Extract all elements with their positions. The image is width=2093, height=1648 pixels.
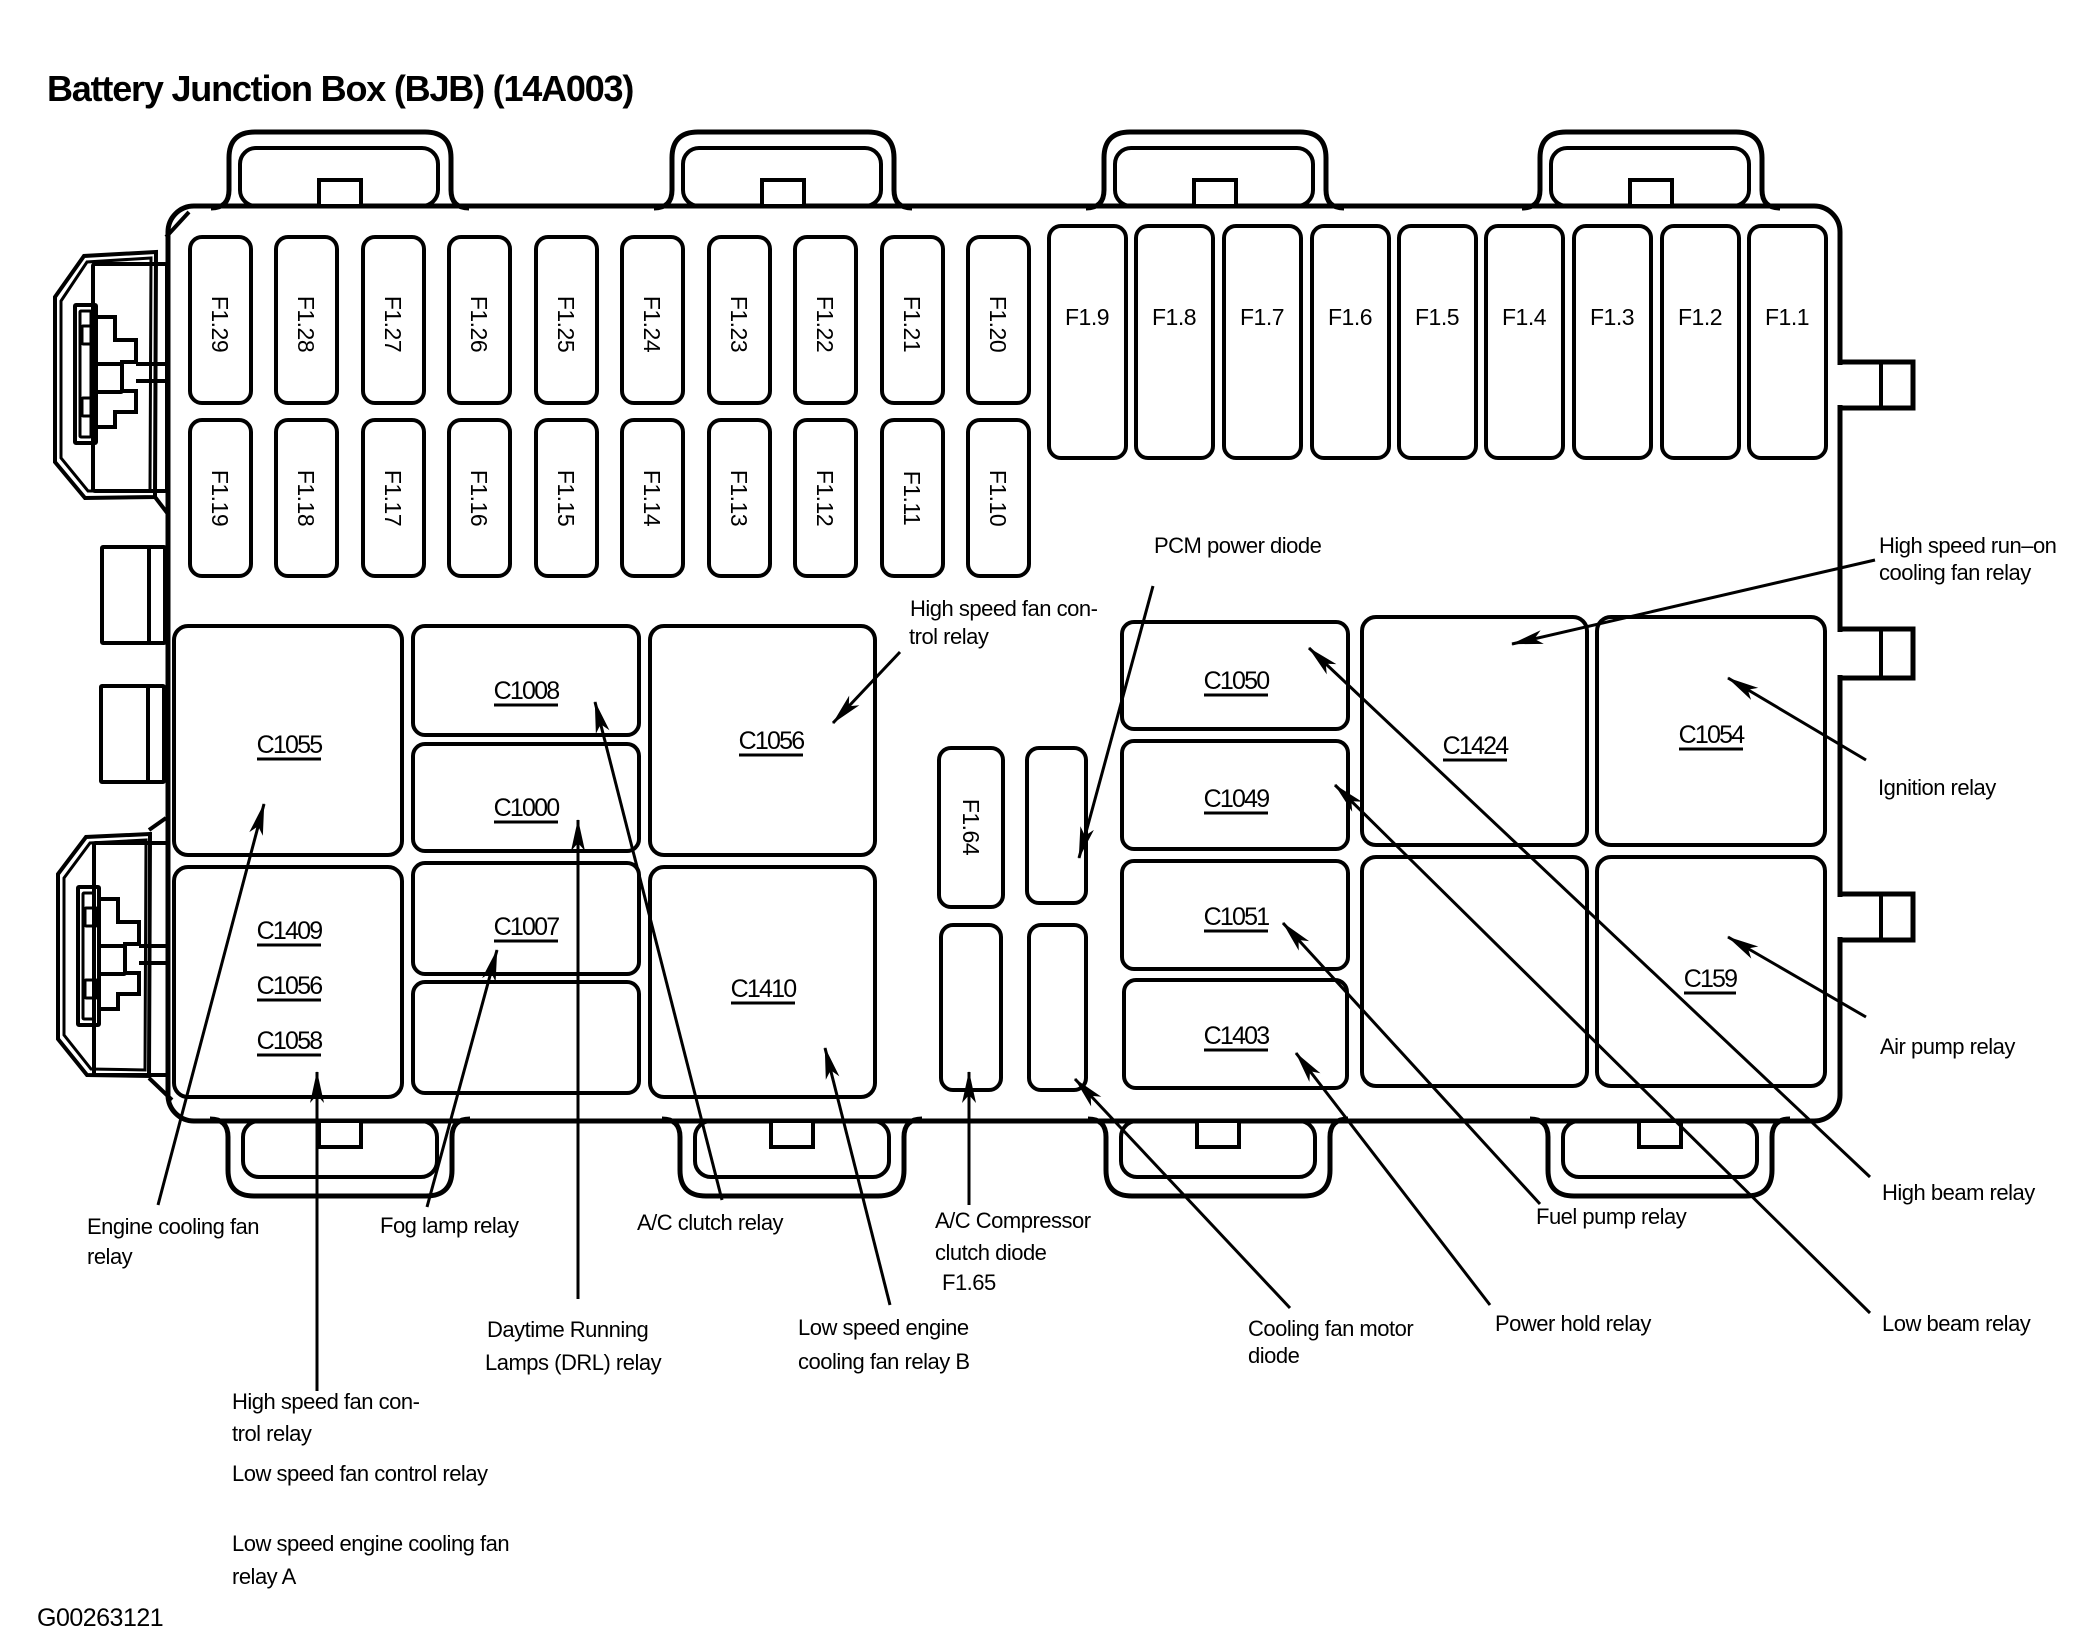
- svg-text:Fuel pump relay: Fuel pump relay: [1536, 1204, 1687, 1229]
- svg-text:F1.8: F1.8: [1152, 304, 1196, 330]
- svg-text:trol relay: trol relay: [909, 624, 989, 649]
- svg-text:F1.28: F1.28: [293, 296, 319, 352]
- svg-text:Fog lamp relay: Fog lamp relay: [380, 1213, 519, 1238]
- svg-text:C1007: C1007: [494, 913, 560, 941]
- svg-text:Air pump relay: Air pump relay: [1880, 1034, 2015, 1059]
- svg-text:F1.22: F1.22: [812, 296, 838, 352]
- svg-text:F1.3: F1.3: [1590, 304, 1634, 330]
- svg-text:F1.11: F1.11: [899, 471, 925, 526]
- svg-text:Low speed fan control relay: Low speed fan control relay: [232, 1461, 488, 1486]
- svg-text:High beam relay: High beam relay: [1882, 1180, 2035, 1205]
- svg-text:Cooling fan motor: Cooling fan motor: [1248, 1316, 1413, 1341]
- svg-text:cooling fan relay: cooling fan relay: [1879, 560, 2031, 585]
- svg-text:clutch diode: clutch diode: [935, 1240, 1047, 1265]
- svg-text:F1.9: F1.9: [1065, 304, 1109, 330]
- svg-text:F1.13: F1.13: [726, 470, 752, 526]
- svg-text:Low beam relay: Low beam relay: [1882, 1311, 2031, 1336]
- svg-text:PCM power diode: PCM power diode: [1154, 533, 1322, 558]
- svg-text:High speed run–on: High speed run–on: [1879, 533, 2056, 558]
- svg-text:Low speed engine: Low speed engine: [798, 1315, 969, 1340]
- svg-text:High speed fan con-: High speed fan con-: [232, 1389, 420, 1414]
- svg-text:F1.64: F1.64: [958, 799, 984, 856]
- svg-text:F1.26: F1.26: [466, 296, 492, 352]
- svg-text:C1058: C1058: [257, 1027, 323, 1055]
- svg-text:F1.2: F1.2: [1678, 304, 1722, 330]
- svg-text:Low speed engine cooling fan: Low speed engine cooling fan: [232, 1531, 509, 1556]
- svg-text:F1.12: F1.12: [812, 470, 838, 526]
- svg-text:F1.25: F1.25: [553, 296, 579, 352]
- svg-text:C1403: C1403: [1204, 1022, 1270, 1050]
- svg-text:A/C clutch relay: A/C clutch relay: [637, 1210, 784, 1235]
- svg-text:F1.14: F1.14: [639, 470, 665, 527]
- svg-text:F1.7: F1.7: [1240, 304, 1284, 330]
- svg-text:High speed fan con-: High speed fan con-: [910, 596, 1098, 621]
- svg-text:C1049: C1049: [1204, 785, 1270, 813]
- svg-text:C1008: C1008: [494, 677, 560, 705]
- svg-text:F1.29: F1.29: [207, 296, 233, 352]
- svg-text:F1.20: F1.20: [985, 296, 1011, 352]
- svg-text:F1.24: F1.24: [639, 296, 665, 353]
- svg-text:G00263121: G00263121: [37, 1604, 163, 1632]
- svg-text:Engine cooling fan: Engine cooling fan: [87, 1214, 259, 1239]
- svg-text:Ignition relay: Ignition relay: [1878, 775, 1996, 800]
- svg-text:F1.65: F1.65: [942, 1270, 996, 1295]
- svg-text:F1.4: F1.4: [1502, 304, 1547, 330]
- svg-text:F1.17: F1.17: [380, 470, 406, 526]
- svg-text:F1.27: F1.27: [380, 296, 406, 352]
- svg-text:F1.19: F1.19: [207, 470, 233, 526]
- svg-text:F1.16: F1.16: [466, 470, 492, 526]
- svg-text:C1424: C1424: [1443, 732, 1510, 760]
- svg-text:C1056: C1056: [739, 727, 805, 755]
- svg-text:C1000: C1000: [494, 794, 560, 822]
- svg-text:F1.18: F1.18: [293, 470, 319, 526]
- svg-text:C1409: C1409: [257, 917, 323, 945]
- svg-text:C1050: C1050: [1204, 667, 1270, 695]
- svg-text:C1051: C1051: [1204, 903, 1270, 931]
- svg-text:C1410: C1410: [731, 975, 797, 1003]
- svg-text:cooling fan relay B: cooling fan relay B: [798, 1349, 970, 1374]
- svg-text:F1.5: F1.5: [1415, 304, 1459, 330]
- svg-text:F1.15: F1.15: [553, 470, 579, 526]
- svg-text:F1.6: F1.6: [1328, 304, 1372, 330]
- svg-text:A/C Compressor: A/C Compressor: [935, 1208, 1091, 1233]
- svg-text:F1.1: F1.1: [1765, 304, 1809, 330]
- svg-text:diode: diode: [1248, 1343, 1300, 1368]
- svg-text:Battery Junction Box (BJB) (14: Battery Junction Box (BJB) (14A003): [47, 68, 633, 109]
- svg-text:C159: C159: [1684, 965, 1737, 993]
- svg-text:C1056: C1056: [257, 972, 323, 1000]
- svg-text:F1.10: F1.10: [985, 470, 1011, 526]
- svg-text:relay: relay: [87, 1244, 133, 1269]
- svg-text:F1.21: F1.21: [899, 296, 925, 352]
- svg-text:relay A: relay A: [232, 1564, 297, 1589]
- svg-text:trol relay: trol relay: [232, 1421, 312, 1446]
- svg-text:F1.23: F1.23: [726, 296, 752, 352]
- svg-text:C1055: C1055: [257, 731, 323, 759]
- svg-text:Daytime Running: Daytime Running: [487, 1317, 648, 1342]
- svg-text:Lamps (DRL) relay: Lamps (DRL) relay: [485, 1350, 662, 1375]
- svg-text:C1054: C1054: [1679, 721, 1746, 749]
- svg-text:Power hold relay: Power hold relay: [1495, 1311, 1651, 1336]
